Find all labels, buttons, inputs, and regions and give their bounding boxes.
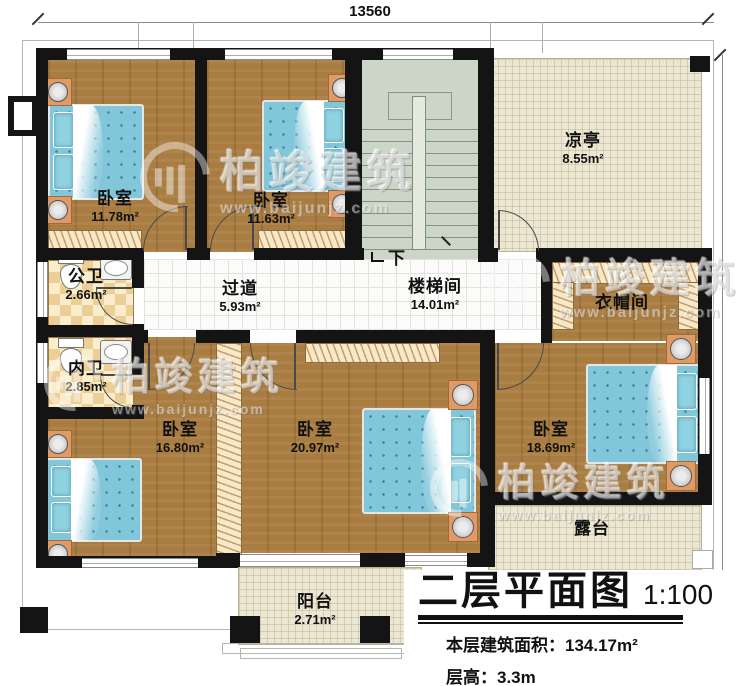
floor-area-line: 本层建筑面积：134.17m²	[446, 631, 734, 656]
pillow	[53, 112, 74, 148]
wardrobe	[305, 343, 440, 363]
wardrobe-cloakroom-left	[552, 282, 574, 330]
balcony-pillar	[230, 616, 260, 643]
door-leaf	[185, 206, 187, 250]
wall	[216, 553, 240, 567]
pillow	[323, 148, 344, 183]
bed	[262, 100, 349, 192]
plan-scale: 1:100	[643, 578, 713, 612]
dimension-tick	[32, 13, 45, 26]
nightstand-lamp-icon	[44, 196, 72, 224]
wall	[541, 258, 552, 343]
wall	[132, 248, 144, 288]
top-dimension-line	[38, 22, 714, 23]
room-label-bedroom-top-mid: 卧室11.63m²	[231, 190, 311, 228]
door-leaf	[148, 343, 150, 389]
right-dimension-line	[722, 55, 723, 633]
wall	[196, 330, 250, 343]
wall	[480, 330, 495, 567]
room-label-hallway: 过道5.93m²	[200, 278, 280, 316]
title-underline-thin	[418, 622, 683, 624]
wardrobe-cloakroom-right	[678, 282, 700, 330]
pillow	[323, 108, 344, 143]
floor-height-line: 层高：3.3m	[446, 663, 734, 686]
wall	[132, 330, 148, 343]
extension-line	[193, 22, 194, 48]
flue-box-inner	[14, 102, 32, 130]
bed	[586, 364, 702, 464]
balcony-sliding-door	[240, 554, 360, 567]
room-label-terrace: 露台	[552, 518, 632, 539]
room-label-public-bathroom: 公卫2.66m²	[55, 266, 117, 304]
window	[225, 49, 332, 60]
pillow	[450, 417, 471, 457]
wall	[195, 48, 207, 252]
wall	[296, 330, 480, 343]
corner-pillar	[20, 607, 48, 633]
wall-pillar	[690, 56, 710, 72]
room-floor-terrace	[488, 505, 702, 574]
wall	[494, 492, 705, 505]
title-underline	[418, 615, 683, 620]
room-label-bedroom-bottom-right: 卧室18.69m²	[511, 419, 591, 457]
room-label-bedroom-bottom-left: 卧室16.80m²	[140, 419, 220, 457]
window	[383, 49, 453, 60]
balcony-step	[240, 648, 402, 659]
pillow	[51, 502, 72, 534]
room-label-private-bathroom: 内卫2.85m²	[55, 358, 117, 396]
room-label-bedroom-bottom-mid: 卧室20.97m²	[275, 419, 355, 457]
nightstand-lamp-icon	[666, 461, 696, 491]
stair-handrail	[412, 96, 426, 250]
toilet-tank	[58, 338, 84, 348]
wall	[36, 407, 144, 419]
nightstand-lamp-icon	[448, 380, 478, 410]
terrace-corner-notch	[692, 550, 713, 569]
pillow	[450, 463, 471, 503]
room-label-pavilion: 凉亭8.55m²	[543, 130, 623, 168]
wall	[254, 248, 364, 260]
dimension-tick	[702, 13, 715, 26]
pillow	[51, 466, 72, 498]
stairs-down-label: 下	[388, 244, 405, 269]
bed	[48, 104, 144, 200]
pillow	[53, 154, 74, 190]
wall	[36, 248, 143, 260]
stairs-down-arrow-icon	[371, 252, 384, 262]
window	[699, 378, 710, 454]
wall	[36, 325, 144, 337]
wall	[345, 48, 362, 252]
door-leaf	[294, 343, 296, 389]
top-dimension-label: 13560	[300, 3, 440, 20]
bed	[362, 408, 476, 514]
nightstand-lamp-icon	[44, 78, 72, 106]
extension-line	[542, 22, 543, 53]
door-leaf	[498, 210, 500, 250]
wall	[478, 48, 494, 262]
door-leaf	[497, 343, 499, 389]
nightstand-lamp-icon	[44, 430, 72, 458]
pillow	[676, 416, 697, 454]
bed	[46, 458, 142, 542]
nightstand-lamp-icon	[666, 334, 696, 364]
wall	[360, 553, 405, 567]
nightstand-lamp-icon	[448, 512, 478, 542]
wardrobe-cloakroom-top	[552, 262, 700, 284]
room-label-cloakroom: 衣帽间	[580, 292, 664, 313]
balcony-pillar	[360, 616, 390, 643]
title-block: 二层平面图 1:100 本层建筑面积：134.17m² 层高：3.3m	[404, 570, 734, 686]
room-label-bedroom-top-left: 卧室11.78m²	[75, 188, 155, 226]
wall	[478, 248, 498, 262]
floor-plan-canvas: 13560 11700 下	[0, 0, 750, 686]
window	[405, 555, 467, 566]
room-label-balcony: 阳台2.71m²	[275, 591, 355, 629]
room-label-stairwell: 楼梯间14.01m²	[391, 276, 479, 314]
window	[67, 49, 170, 60]
window	[37, 343, 48, 383]
window	[82, 558, 198, 568]
wall	[536, 248, 712, 262]
pillow	[676, 373, 697, 411]
wall	[467, 553, 480, 567]
extension-line	[138, 22, 139, 48]
window	[37, 262, 48, 317]
plan-title: 二层平面图	[418, 570, 633, 612]
wall	[187, 248, 210, 260]
dimension-tick	[714, 49, 727, 62]
